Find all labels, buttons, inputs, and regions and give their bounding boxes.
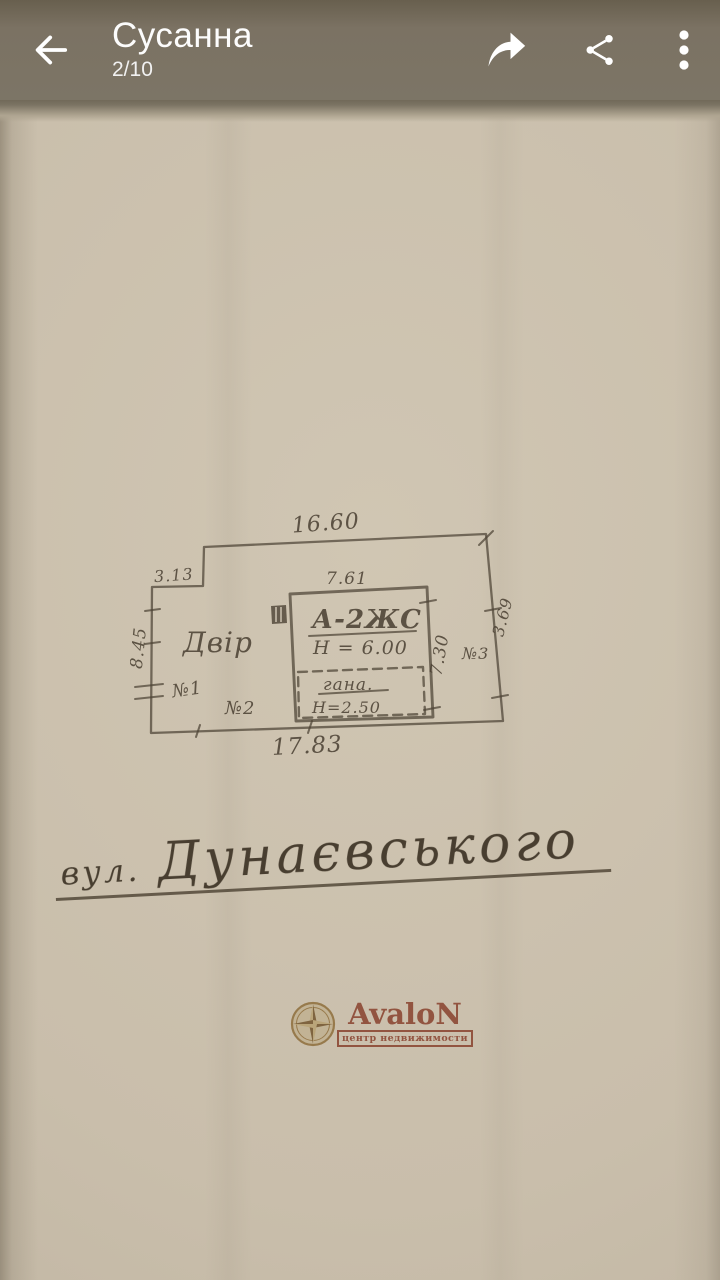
forward-button[interactable]	[483, 28, 527, 72]
street-name: Дунаєвського	[156, 811, 581, 893]
forward-arrow-icon	[483, 28, 527, 72]
share-icon	[582, 30, 618, 70]
share-button[interactable]	[580, 30, 620, 70]
image-counter: 2/10	[112, 57, 253, 83]
dim-left-label: 8.45	[130, 626, 151, 670]
mark1-label: №1	[170, 677, 204, 702]
gallery-viewer-screen: 16.60 3.13 7.61 8.45 17.83 7.30 3.69 Дві…	[0, 0, 720, 1280]
street-caption: вул. Дунаєвського	[53, 809, 612, 901]
building-label: А-2ЖС	[310, 605, 422, 635]
mark3-label: №3	[461, 644, 489, 663]
mark2-label: №2	[224, 698, 256, 719]
plan-drawing: 16.60 3.13 7.61 8.45 17.83 7.30 3.69 Дві…	[130, 490, 530, 760]
agency-watermark: AvaloN центр недвижимости	[290, 1000, 473, 1047]
dim-step-label: 3.13	[153, 564, 194, 586]
title-block: Сусанна 2/10	[112, 17, 253, 83]
dim-bottom-label: 17.83	[271, 731, 343, 760]
back-button[interactable]	[28, 27, 74, 73]
app-bar-actions	[483, 28, 720, 72]
arrow-left-icon	[31, 30, 71, 70]
porch-hatch	[271, 605, 287, 624]
watermark-tagline: центр недвижимости	[337, 1030, 473, 1047]
app-bar: Сусанна 2/10	[0, 0, 720, 100]
dim-building-top-label: 7.61	[326, 569, 368, 589]
dim-top-label: 16.60	[291, 509, 361, 539]
building-height-label: Н = 6.00	[312, 637, 408, 659]
photo-viewport[interactable]: 16.60 3.13 7.61 8.45 17.83 7.30 3.69 Дві…	[0, 0, 720, 1280]
page-title: Сусанна	[112, 17, 253, 55]
annex-height-label: Н=2.50	[311, 698, 381, 717]
yard-label: Двір	[181, 626, 253, 659]
watermark-brand: AvaloN	[348, 1000, 462, 1029]
compass-rose-icon	[290, 1001, 336, 1047]
street-prefix: вул.	[60, 851, 142, 893]
more-vert-icon	[677, 28, 691, 72]
more-options-button[interactable]	[670, 28, 698, 72]
